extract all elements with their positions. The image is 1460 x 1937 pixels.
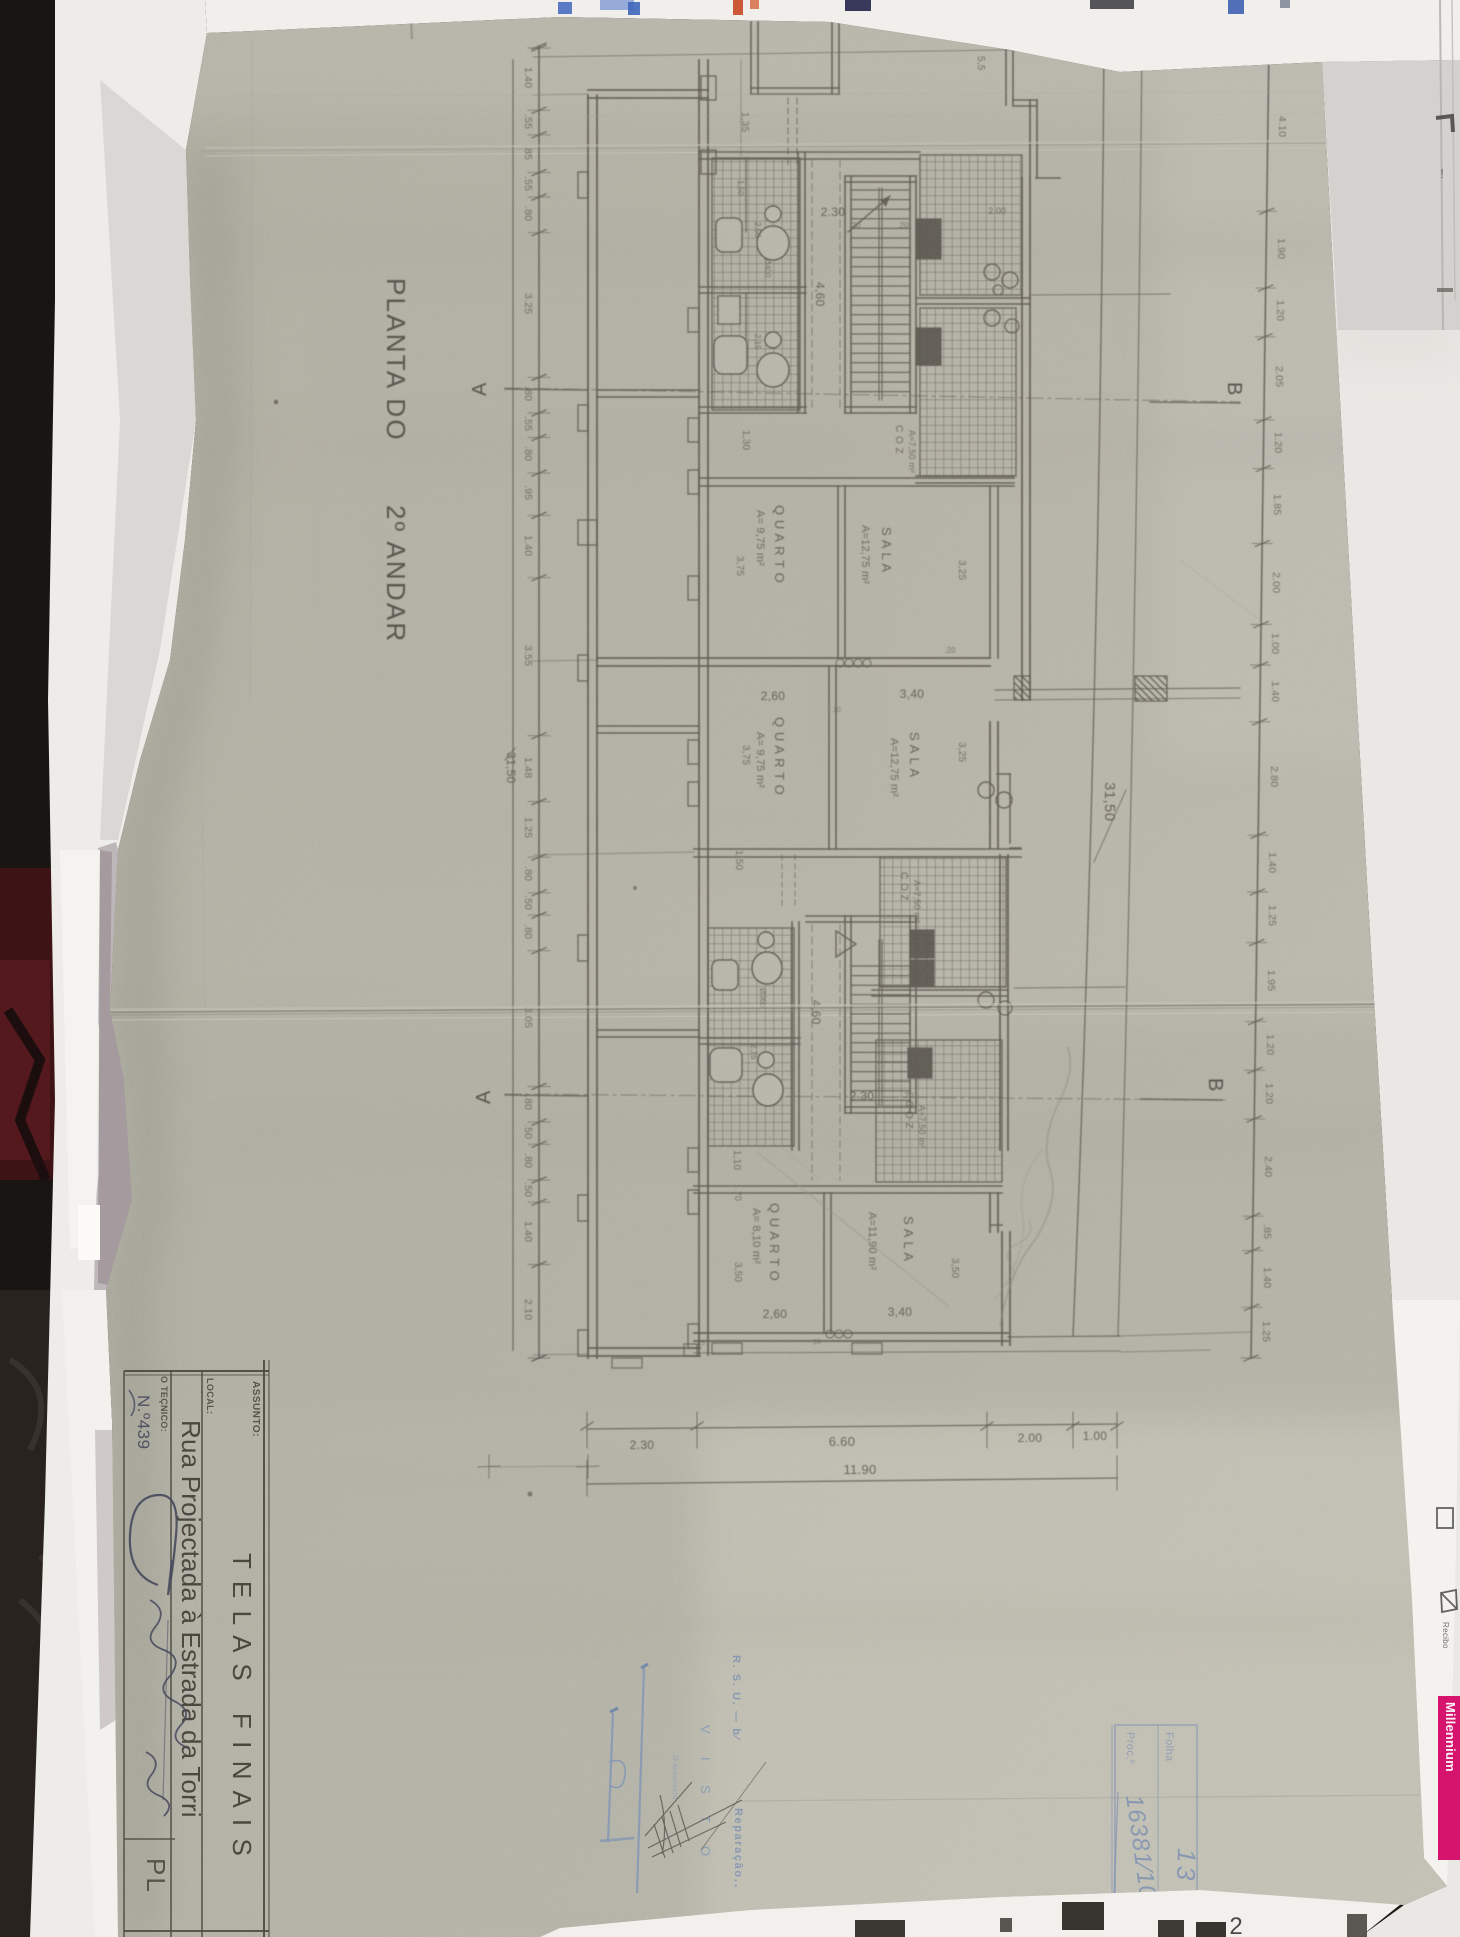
svg-text:Recibo: Recibo [1441,1622,1450,1649]
svg-text:!: ! [1440,166,1444,181]
svg-text:Millennium: Millennium [1443,1702,1458,1772]
svg-text:2: 2 [1229,1913,1242,1937]
